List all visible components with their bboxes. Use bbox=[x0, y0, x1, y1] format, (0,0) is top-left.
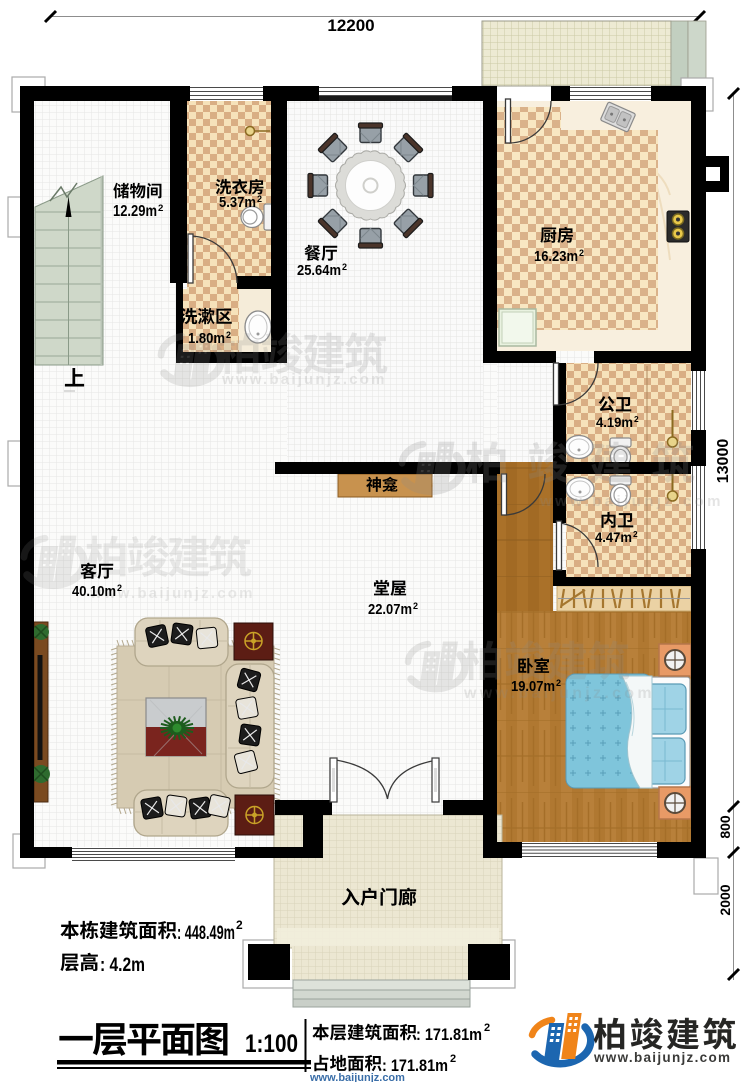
svg-text:: 4.2m: : 4.2m bbox=[100, 955, 145, 976]
svg-text:16.23m: 16.23m bbox=[534, 249, 578, 265]
svg-text:4.19m: 4.19m bbox=[596, 415, 633, 430]
svg-text:2000: 2000 bbox=[717, 884, 733, 915]
svg-text:12200: 12200 bbox=[327, 16, 374, 35]
svg-text:13000: 13000 bbox=[715, 439, 732, 484]
svg-text:2: 2 bbox=[634, 414, 639, 424]
svg-text:5.37m: 5.37m bbox=[219, 195, 256, 211]
svg-text:www.baijunjz.com: www.baijunjz.com bbox=[539, 493, 724, 510]
svg-text:25.64m: 25.64m bbox=[297, 263, 341, 279]
svg-text:2: 2 bbox=[556, 678, 561, 688]
svg-text:40.10m: 40.10m bbox=[72, 584, 116, 600]
svg-text:2: 2 bbox=[450, 1053, 456, 1065]
svg-text:: 171.81m: : 171.81m bbox=[416, 1025, 482, 1044]
svg-text:12.29m: 12.29m bbox=[113, 203, 157, 220]
svg-text:1:100: 1:100 bbox=[245, 1030, 298, 1058]
svg-text:: 448.49m: : 448.49m bbox=[177, 923, 235, 944]
svg-text:2: 2 bbox=[117, 583, 122, 593]
svg-text:1.80m: 1.80m bbox=[188, 331, 225, 347]
svg-text:2: 2 bbox=[484, 1022, 490, 1034]
svg-text:19.07m: 19.07m bbox=[511, 679, 555, 695]
svg-text:2: 2 bbox=[158, 203, 163, 214]
svg-text:2: 2 bbox=[342, 262, 347, 272]
svg-text:www.baijunjz.com: www.baijunjz.com bbox=[221, 371, 387, 388]
svg-text:2: 2 bbox=[236, 918, 243, 932]
svg-text:2: 2 bbox=[633, 529, 638, 539]
svg-text:2: 2 bbox=[257, 194, 262, 204]
svg-text:22.07m: 22.07m bbox=[368, 602, 412, 618]
svg-text:4.47m: 4.47m bbox=[595, 530, 632, 545]
svg-text:2: 2 bbox=[579, 248, 584, 258]
svg-text:www.baijunjz.com: www.baijunjz.com bbox=[309, 1072, 405, 1082]
svg-text:2: 2 bbox=[226, 330, 231, 340]
svg-text:www.baijunjz.com: www.baijunjz.com bbox=[593, 1050, 731, 1065]
svg-text:2: 2 bbox=[413, 601, 418, 611]
svg-text:800: 800 bbox=[717, 815, 733, 839]
